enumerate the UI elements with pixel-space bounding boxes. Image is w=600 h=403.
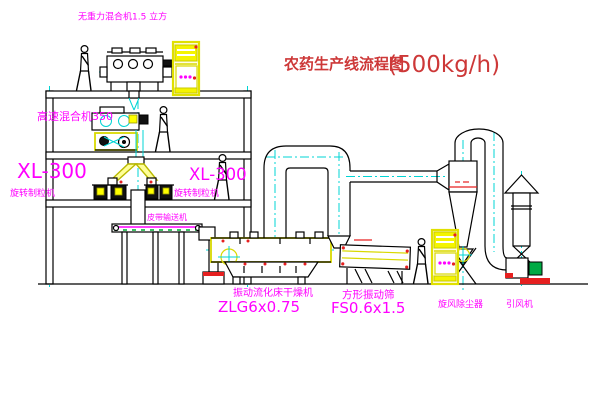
belt-conveyor: [112, 224, 202, 284]
diagram-title-capacity: (500kg/h): [388, 52, 500, 78]
induced-draft-fan: [505, 258, 550, 284]
control-cabinet-1: [173, 42, 199, 95]
granulator-left: [92, 178, 128, 199]
person-roof: [77, 46, 92, 91]
vibrating-sieve: [340, 245, 411, 269]
label-gravity-mixer: 无重力混合机1.5 立方: [78, 11, 167, 23]
granulator-right: [144, 178, 174, 199]
cad-drawing-canvas: 农药生产线流程图 (500kg/h) 无重力混合机1.5 立方 高速混合机350…: [0, 0, 600, 403]
person-second-floor: [156, 107, 171, 152]
diagram-title: 农药生产线流程图: [283, 55, 404, 73]
label-high-speed-mixer: 高速混合机350: [37, 109, 113, 123]
control-cabinet-2: [432, 230, 458, 284]
label-granulator-left-name: 旋转制粒机: [10, 187, 55, 199]
downcomer-duct: [131, 190, 145, 226]
label-granulator-right-model: XL-300: [189, 165, 247, 184]
fan-motor: [529, 262, 542, 275]
exhaust-stack: [505, 175, 538, 262]
label-dryer-model: ZLG6x0.75: [218, 298, 300, 316]
high-speed-mixer: [92, 98, 148, 158]
label-granulator-left-model: XL-300: [17, 159, 87, 183]
process-flow-diagram: 农药生产线流程图 (500kg/h) 无重力混合机1.5 立方 高速混合机350…: [0, 0, 600, 403]
label-belt-conveyor: 皮带输送机: [147, 212, 187, 222]
y-chute: [111, 157, 157, 180]
label-sieve-model: FS0.6x1.5: [331, 299, 405, 317]
cabinet1-indicator-dots: [179, 75, 182, 78]
person-ground: [414, 239, 429, 284]
label-cyclone: 旋风除尘器: [438, 298, 483, 310]
label-fan: 引风机: [506, 298, 533, 310]
dryer-exhaust-pipe: [264, 146, 350, 238]
label-granulator-right-name: 旋转制粒机: [174, 187, 219, 199]
